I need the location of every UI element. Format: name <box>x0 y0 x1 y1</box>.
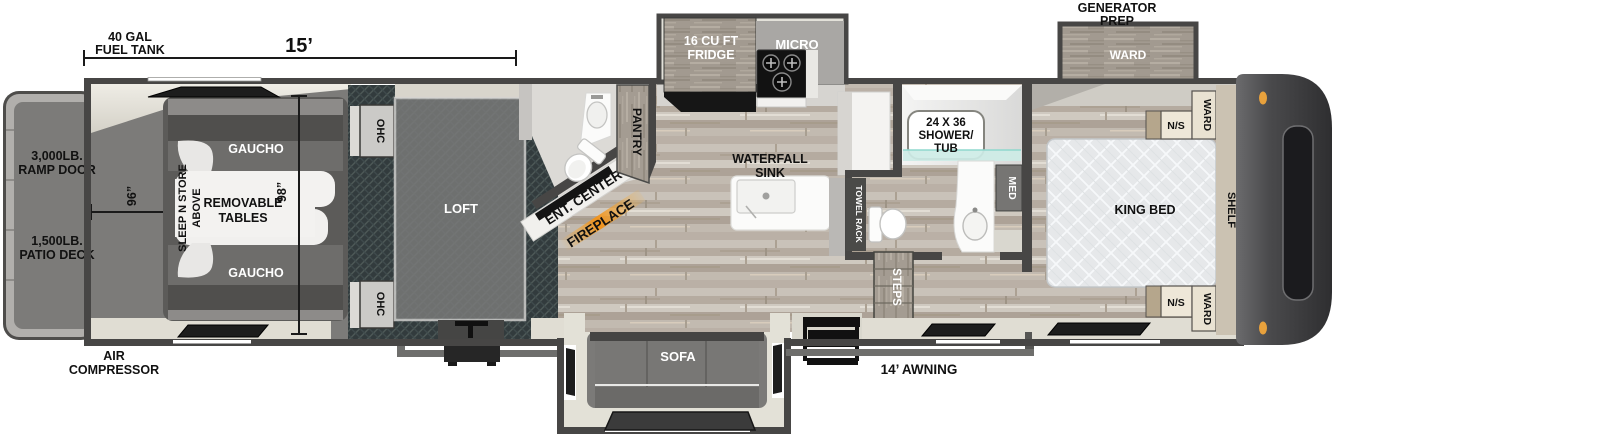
svg-text:24 X 36: 24 X 36 <box>926 117 966 129</box>
svg-text:SHELF: SHELF <box>1225 192 1237 228</box>
svg-text:TOWEL RACK: TOWEL RACK <box>854 185 864 243</box>
svg-text:FUEL TANK: FUEL TANK <box>95 43 165 57</box>
svg-text:SINK: SINK <box>755 166 785 180</box>
svg-text:SOFA: SOFA <box>660 349 696 364</box>
svg-text:3,000LB.: 3,000LB. <box>31 149 82 163</box>
svg-text:N/S: N/S <box>1167 120 1185 132</box>
svg-text:96”: 96” <box>125 186 139 206</box>
svg-text:REMOVABLE: REMOVABLE <box>204 196 283 210</box>
svg-text:TABLES: TABLES <box>218 211 267 225</box>
svg-text:PATIO DECK: PATIO DECK <box>19 248 94 262</box>
svg-text:AIR: AIR <box>103 349 125 363</box>
svg-text:14’ AWNING: 14’ AWNING <box>881 362 958 377</box>
svg-text:MED: MED <box>1006 176 1018 200</box>
svg-text:WARD: WARD <box>1110 48 1147 62</box>
svg-text:GAUCHO: GAUCHO <box>228 142 284 156</box>
svg-text:WATERFALL: WATERFALL <box>732 152 808 166</box>
svg-text:OHC: OHC <box>374 119 386 144</box>
svg-text:COMPRESSOR: COMPRESSOR <box>69 363 159 377</box>
svg-text:40 GAL: 40 GAL <box>108 30 152 44</box>
svg-text:STEPS: STEPS <box>890 268 902 306</box>
svg-text:PREP: PREP <box>1100 14 1134 28</box>
svg-text:PANTRY: PANTRY <box>630 108 644 156</box>
svg-text:WARD: WARD <box>1201 99 1213 131</box>
svg-text:GAUCHO: GAUCHO <box>228 266 284 280</box>
svg-text:TUB: TUB <box>934 143 958 155</box>
svg-text:WARD: WARD <box>1201 293 1213 325</box>
svg-text:FRIDGE: FRIDGE <box>687 48 734 62</box>
svg-text:15’: 15’ <box>285 35 313 57</box>
svg-text:SLEEP N STORE: SLEEP N STORE <box>177 164 189 252</box>
svg-text:LOFT: LOFT <box>444 201 478 216</box>
svg-text:98”: 98” <box>275 182 289 202</box>
svg-text:KING BED: KING BED <box>1114 203 1175 217</box>
svg-text:ABOVE: ABOVE <box>191 188 203 227</box>
svg-text:1,500LB.: 1,500LB. <box>31 234 82 248</box>
svg-text:16 CU FT: 16 CU FT <box>684 34 739 48</box>
svg-text:N/S: N/S <box>1167 297 1185 309</box>
svg-text:SHOWER/: SHOWER/ <box>919 130 975 142</box>
svg-text:GENERATOR: GENERATOR <box>1078 1 1157 15</box>
svg-text:OHC: OHC <box>374 292 386 317</box>
